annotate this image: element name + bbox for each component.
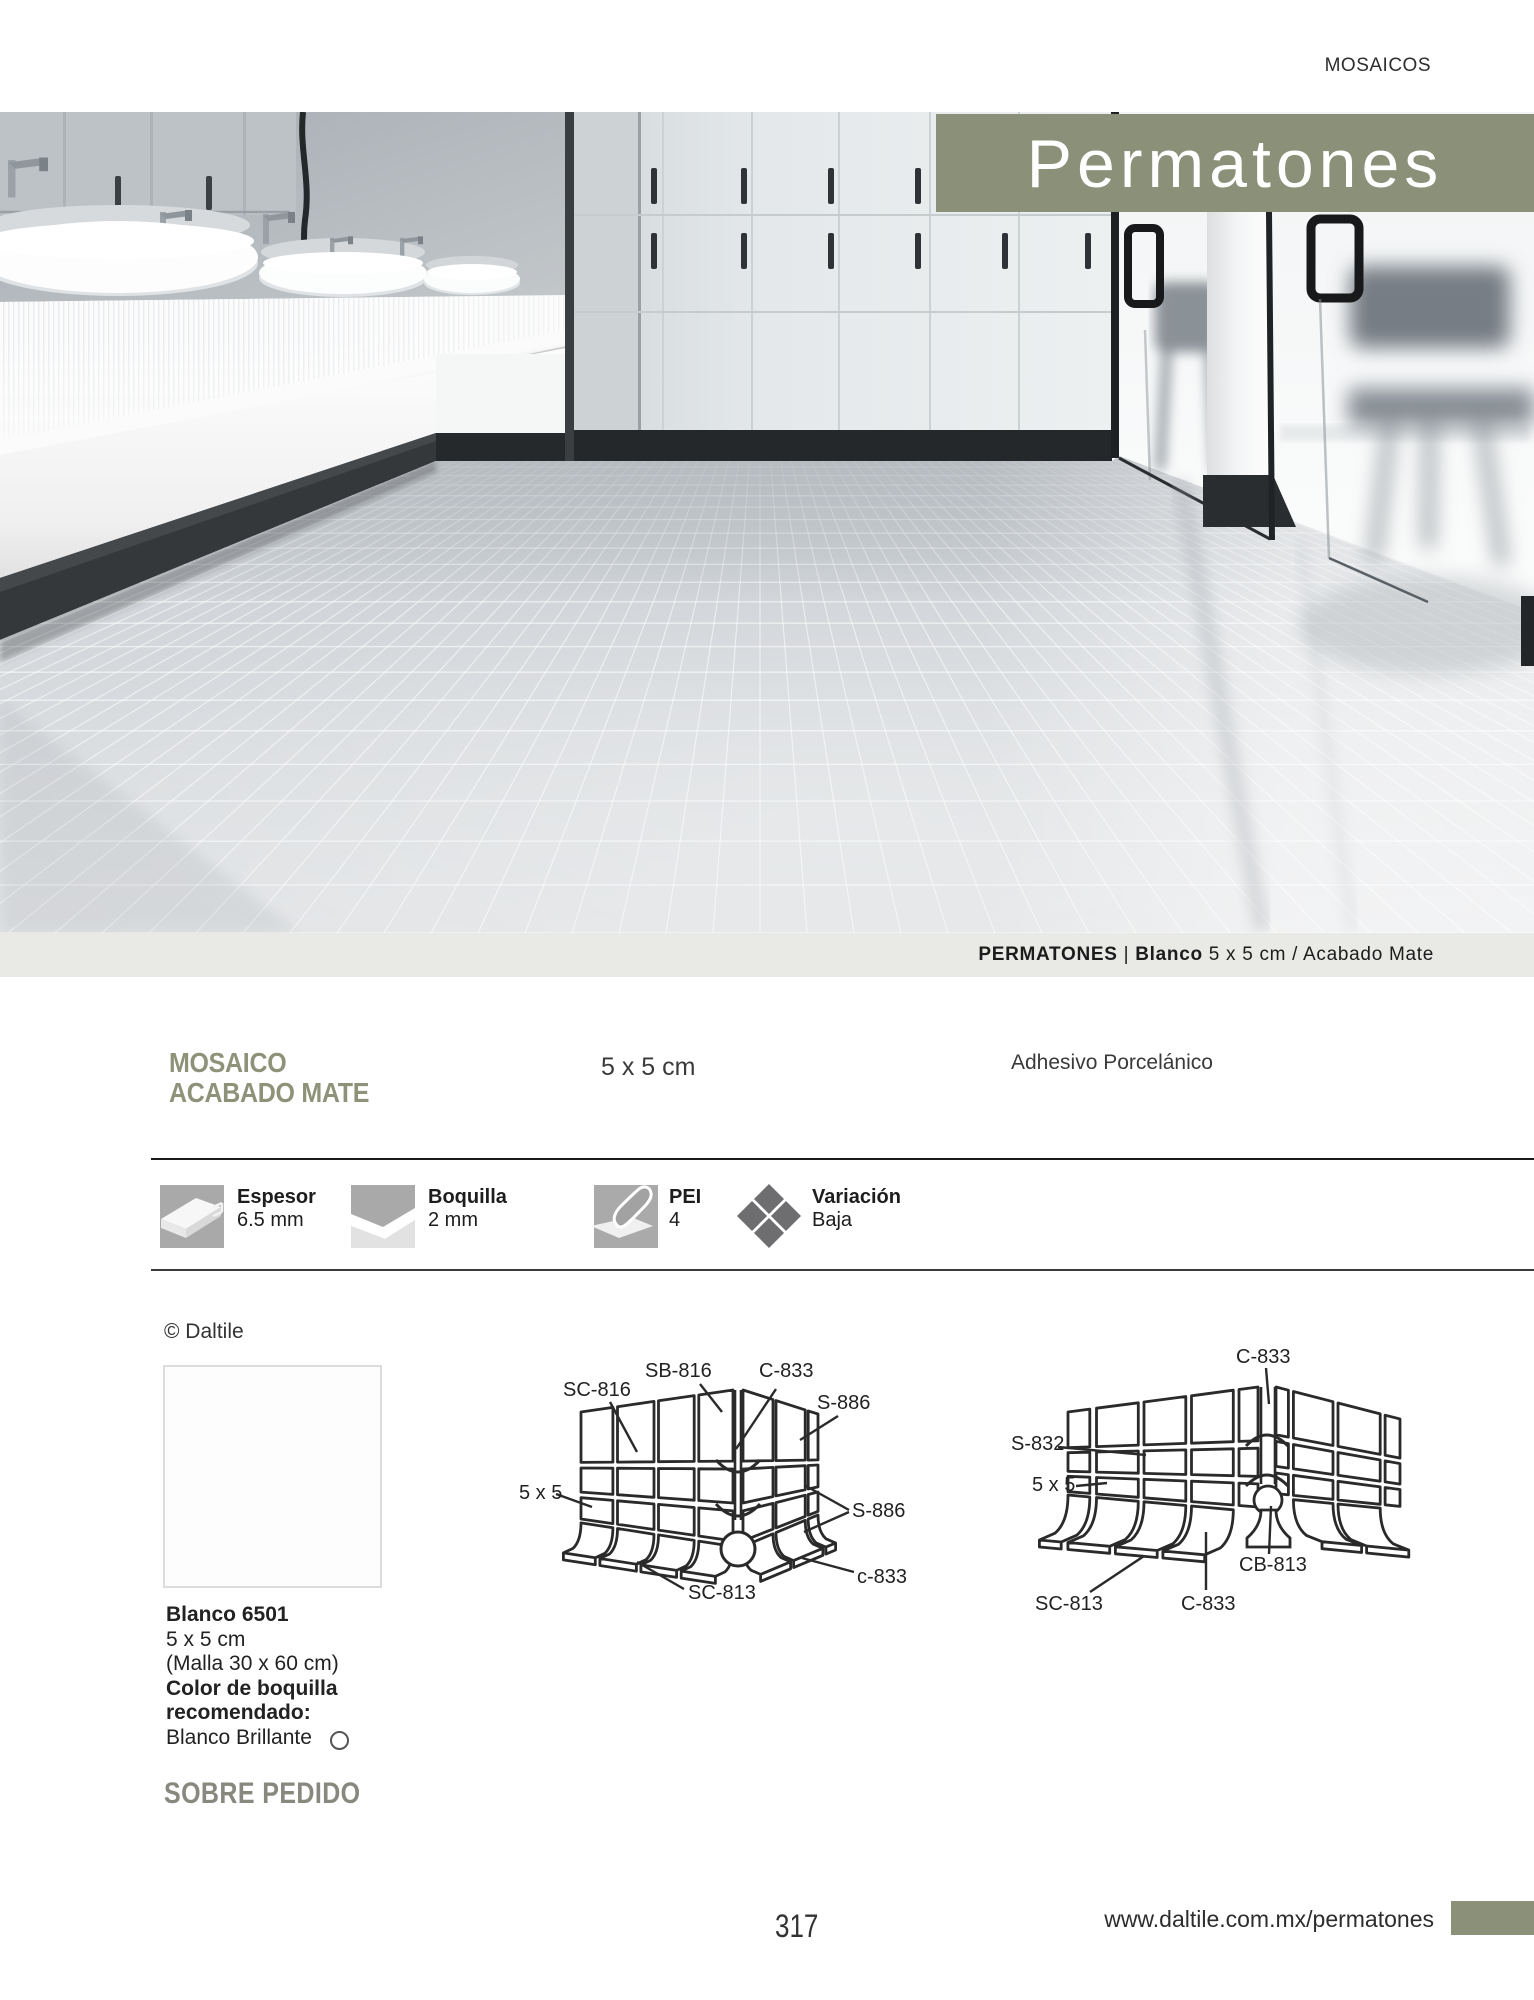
svg-text:SC-813: SC-813: [688, 1582, 756, 1604]
svg-text:SC-816: SC-816: [563, 1379, 631, 1401]
svg-text:C-833: C-833: [1236, 1346, 1290, 1368]
svg-text:C-833: C-833: [1181, 1593, 1235, 1615]
svg-text:5 x 5: 5 x 5: [1032, 1474, 1075, 1496]
svg-text:c-833: c-833: [857, 1566, 907, 1588]
svg-text:CB-813: CB-813: [1239, 1554, 1307, 1576]
svg-text:5 x 5: 5 x 5: [519, 1482, 562, 1504]
svg-text:S-886: S-886: [852, 1500, 905, 1522]
svg-text:C-833: C-833: [759, 1360, 813, 1382]
svg-text:S-886: S-886: [817, 1392, 870, 1414]
svg-text:S-832: S-832: [1011, 1433, 1064, 1455]
svg-text:SB-816: SB-816: [645, 1360, 712, 1382]
svg-text:SC-813: SC-813: [1035, 1593, 1103, 1615]
